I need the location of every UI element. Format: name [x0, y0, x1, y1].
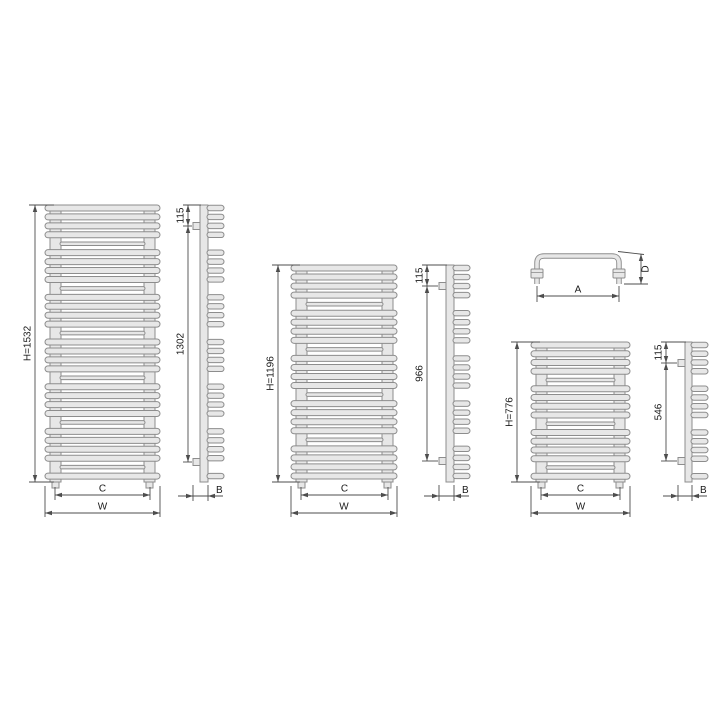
tube [291, 283, 397, 289]
tube-inset [546, 378, 615, 382]
short-bracket-span-label: 546 [654, 403, 665, 420]
tall-height-label: H=1532 [23, 325, 34, 361]
tube-end [453, 383, 470, 388]
tube-end [453, 428, 470, 433]
arrowhead [671, 494, 678, 498]
tube-inset [306, 348, 383, 352]
tube [531, 395, 630, 401]
tube-end [691, 430, 708, 435]
tube [45, 411, 160, 417]
tube-inset [60, 331, 145, 335]
tube-end [691, 351, 708, 356]
tube-end [207, 455, 224, 460]
arrowhead [381, 493, 388, 497]
arrowhead [186, 226, 190, 233]
tube [531, 403, 630, 409]
arrowhead [33, 205, 37, 212]
tall-bracket-span-label: 1302 [176, 332, 187, 355]
tube [291, 401, 397, 407]
tube [45, 259, 160, 265]
tube [45, 402, 160, 408]
tube-end [453, 410, 470, 415]
tube-end [207, 339, 224, 344]
radiator-tall-depth-dimension: B [178, 485, 223, 501]
medium-height-label: H=1196 [266, 356, 277, 391]
arrowhead [276, 475, 280, 482]
wall-bracket [678, 360, 685, 367]
tube [291, 364, 397, 370]
radiator-medium-bracket-dimensions: 115966 [415, 265, 448, 461]
tube-end [453, 401, 470, 406]
tube-end [207, 277, 224, 282]
tube [531, 360, 630, 366]
radiator-medium-side-view [439, 265, 470, 482]
radiator-tall-front-view [45, 205, 160, 488]
tube [45, 303, 160, 309]
tube [45, 384, 160, 390]
short-bracket-offset-label: 115 [654, 344, 665, 360]
tube-end [691, 386, 708, 391]
tube [291, 446, 397, 452]
arrowhead [55, 493, 62, 497]
tube-end [207, 214, 224, 219]
tube [45, 268, 160, 274]
tube [45, 276, 160, 282]
extension-line [618, 252, 644, 255]
tube-inset [60, 421, 145, 425]
tube-end [453, 283, 470, 288]
tube [291, 374, 397, 380]
handle-depth-label: D [641, 265, 652, 272]
wall-bracket [678, 458, 685, 465]
tube-end [453, 446, 470, 451]
tube-end [207, 321, 224, 326]
tube-end [207, 304, 224, 309]
wall-bracket [439, 283, 446, 290]
tube-end [207, 447, 224, 452]
radiator-short-collector-width-dimension: C [541, 484, 620, 501]
tube-end [207, 438, 224, 443]
handle-width-label: A [575, 285, 582, 296]
arrowhead [45, 511, 52, 515]
tube-end [453, 374, 470, 379]
tube-inset [60, 465, 145, 469]
tube [531, 342, 630, 348]
handle-collar [531, 269, 543, 278]
tube-end [207, 348, 224, 353]
radiator-tall-bracket-dimensions: 1151302 [176, 205, 202, 462]
medium-bracket-span-label: 966 [415, 365, 426, 382]
radiator-medium-depth-dimension: B [424, 485, 469, 501]
tube-end [207, 429, 224, 434]
short-depth-label: B [700, 485, 707, 496]
tube-end [207, 366, 224, 371]
tube [45, 455, 160, 461]
arrowhead [541, 493, 548, 497]
tube [531, 430, 630, 436]
tube-end [691, 404, 708, 409]
handle-width-dimension: A [537, 285, 619, 303]
short-height-label: H=776 [505, 397, 516, 427]
tube [531, 438, 630, 444]
radiator-technical-drawing: H=1532CW1151302BH=1196CW115966BH=776CW11… [0, 0, 720, 720]
radiator-short-depth-dimension: B [663, 485, 707, 501]
tube-end [691, 474, 708, 479]
tube [531, 412, 630, 418]
tube [45, 473, 160, 479]
arrowhead [153, 511, 160, 515]
tube [45, 393, 160, 399]
tube-end [453, 320, 470, 325]
tube-end [207, 268, 224, 273]
radiator-tall-collector-width-dimension: C [55, 484, 150, 501]
tube-end [453, 292, 470, 297]
tube [45, 321, 160, 327]
tube [531, 351, 630, 357]
wall-bracket [193, 459, 200, 466]
medium-bracket-offset-label: 115 [415, 267, 426, 283]
connection-stub [616, 482, 623, 488]
tube [531, 386, 630, 392]
arrowhead [33, 475, 37, 482]
tube-end [691, 439, 708, 444]
medium-depth-label: B [462, 485, 469, 496]
tube-end [691, 342, 708, 347]
arrowhead [515, 342, 519, 349]
tube-end [691, 447, 708, 452]
connection-stub [298, 482, 305, 488]
arrowhead [276, 265, 280, 272]
arrowhead [515, 475, 519, 482]
tube-end [207, 250, 224, 255]
tube [531, 368, 630, 374]
tube [531, 473, 630, 479]
connection-stub [384, 482, 391, 488]
tube-end [453, 311, 470, 316]
tube-end [691, 456, 708, 461]
tube-inset [60, 287, 145, 291]
tube [45, 250, 160, 256]
handle-depth-dimension: D [618, 252, 652, 285]
tube-end [453, 356, 470, 361]
connection-stub [538, 482, 545, 488]
tube [291, 328, 397, 334]
medium-overall-width-label: W [339, 502, 349, 513]
tube [45, 446, 160, 452]
tube-end [691, 395, 708, 400]
tube [531, 447, 630, 453]
tube [45, 348, 160, 354]
arrowhead [639, 277, 643, 284]
tube [291, 337, 397, 343]
medium-collector-width-label: C [341, 484, 348, 495]
tube [45, 312, 160, 318]
tube [531, 456, 630, 462]
arrowhead [425, 454, 429, 461]
arrowhead [623, 511, 630, 515]
tube-end [207, 384, 224, 389]
tube-end [453, 274, 470, 279]
tube [291, 319, 397, 325]
tube [291, 428, 397, 434]
arrowhead [390, 511, 397, 515]
tube-end [453, 455, 470, 460]
tube-inset [306, 438, 383, 442]
arrowhead [664, 454, 668, 461]
tube [291, 265, 397, 271]
tube [45, 437, 160, 443]
handle-detail [531, 256, 625, 284]
arrowhead [425, 286, 429, 293]
tube-inset [306, 302, 383, 306]
short-overall-width-label: W [576, 502, 586, 513]
tube [291, 455, 397, 461]
tube-end [207, 411, 224, 416]
tube [45, 214, 160, 220]
arrowhead [692, 494, 699, 498]
arrowhead [186, 494, 193, 498]
tube [45, 357, 160, 363]
tube [291, 410, 397, 416]
tube [291, 464, 397, 470]
wall-bracket [193, 223, 200, 230]
tube-end [453, 365, 470, 370]
tube [45, 339, 160, 345]
tube-end [207, 232, 224, 237]
tube-end [453, 473, 470, 478]
tube-end [453, 265, 470, 270]
tube-end [691, 369, 708, 374]
radiator-short-side-view [678, 342, 708, 482]
tube-end [453, 329, 470, 334]
handle-tube [537, 256, 619, 284]
tube-inset [60, 242, 145, 246]
radiator-tall-side-view [193, 205, 224, 482]
tube-end [207, 259, 224, 264]
connection-stub [146, 482, 153, 488]
arrowhead [143, 493, 150, 497]
tube-end [453, 419, 470, 424]
arrowhead [664, 363, 668, 370]
tube [291, 274, 397, 280]
tube [45, 223, 160, 229]
tube [291, 310, 397, 316]
tube-inset [546, 422, 615, 426]
tube [45, 366, 160, 372]
wall-bracket [439, 458, 446, 465]
drawing-svg: H=1532CW1151302BH=1196CW115966BH=776CW11… [0, 0, 720, 720]
tall-overall-width-label: W [98, 502, 108, 513]
tube [291, 419, 397, 425]
tube-end [691, 412, 708, 417]
radiator-short-front-view [531, 342, 630, 488]
tube-end [207, 402, 224, 407]
tube-end [207, 223, 224, 228]
handle-collar [613, 269, 625, 278]
tube [291, 383, 397, 389]
tube-end [453, 464, 470, 469]
tube-inset [306, 393, 383, 397]
arrowhead [613, 493, 620, 497]
tube-inset [546, 466, 615, 470]
tall-bracket-offset-label: 115 [176, 207, 187, 223]
short-collector-width-label: C [577, 484, 584, 495]
tube-end [207, 473, 224, 478]
arrowhead [537, 294, 544, 298]
radiator-medium-front-view [291, 265, 397, 488]
tube-end [207, 313, 224, 318]
arrowhead [291, 511, 298, 515]
tube-end [207, 205, 224, 210]
arrowhead [612, 294, 619, 298]
tube [45, 294, 160, 300]
connection-stub [52, 482, 59, 488]
tube-end [207, 295, 224, 300]
tall-collector-width-label: C [99, 484, 106, 495]
arrowhead [639, 254, 643, 261]
tube [45, 205, 160, 211]
tube [45, 428, 160, 434]
arrowhead [208, 494, 215, 498]
tube-end [453, 338, 470, 343]
arrowhead [432, 494, 439, 498]
tube-end [207, 357, 224, 362]
tube [291, 292, 397, 298]
radiator-medium-collector-width-dimension: C [301, 484, 388, 501]
arrowhead [186, 455, 190, 462]
tube-end [691, 360, 708, 365]
tube [45, 232, 160, 238]
tube-end [207, 393, 224, 398]
tube [291, 355, 397, 361]
tube-inset [60, 376, 145, 380]
arrowhead [454, 494, 461, 498]
handle-tube-outline [537, 256, 619, 284]
arrowhead [301, 493, 308, 497]
tall-depth-label: B [216, 485, 223, 496]
tube [291, 473, 397, 479]
arrowhead [531, 511, 538, 515]
